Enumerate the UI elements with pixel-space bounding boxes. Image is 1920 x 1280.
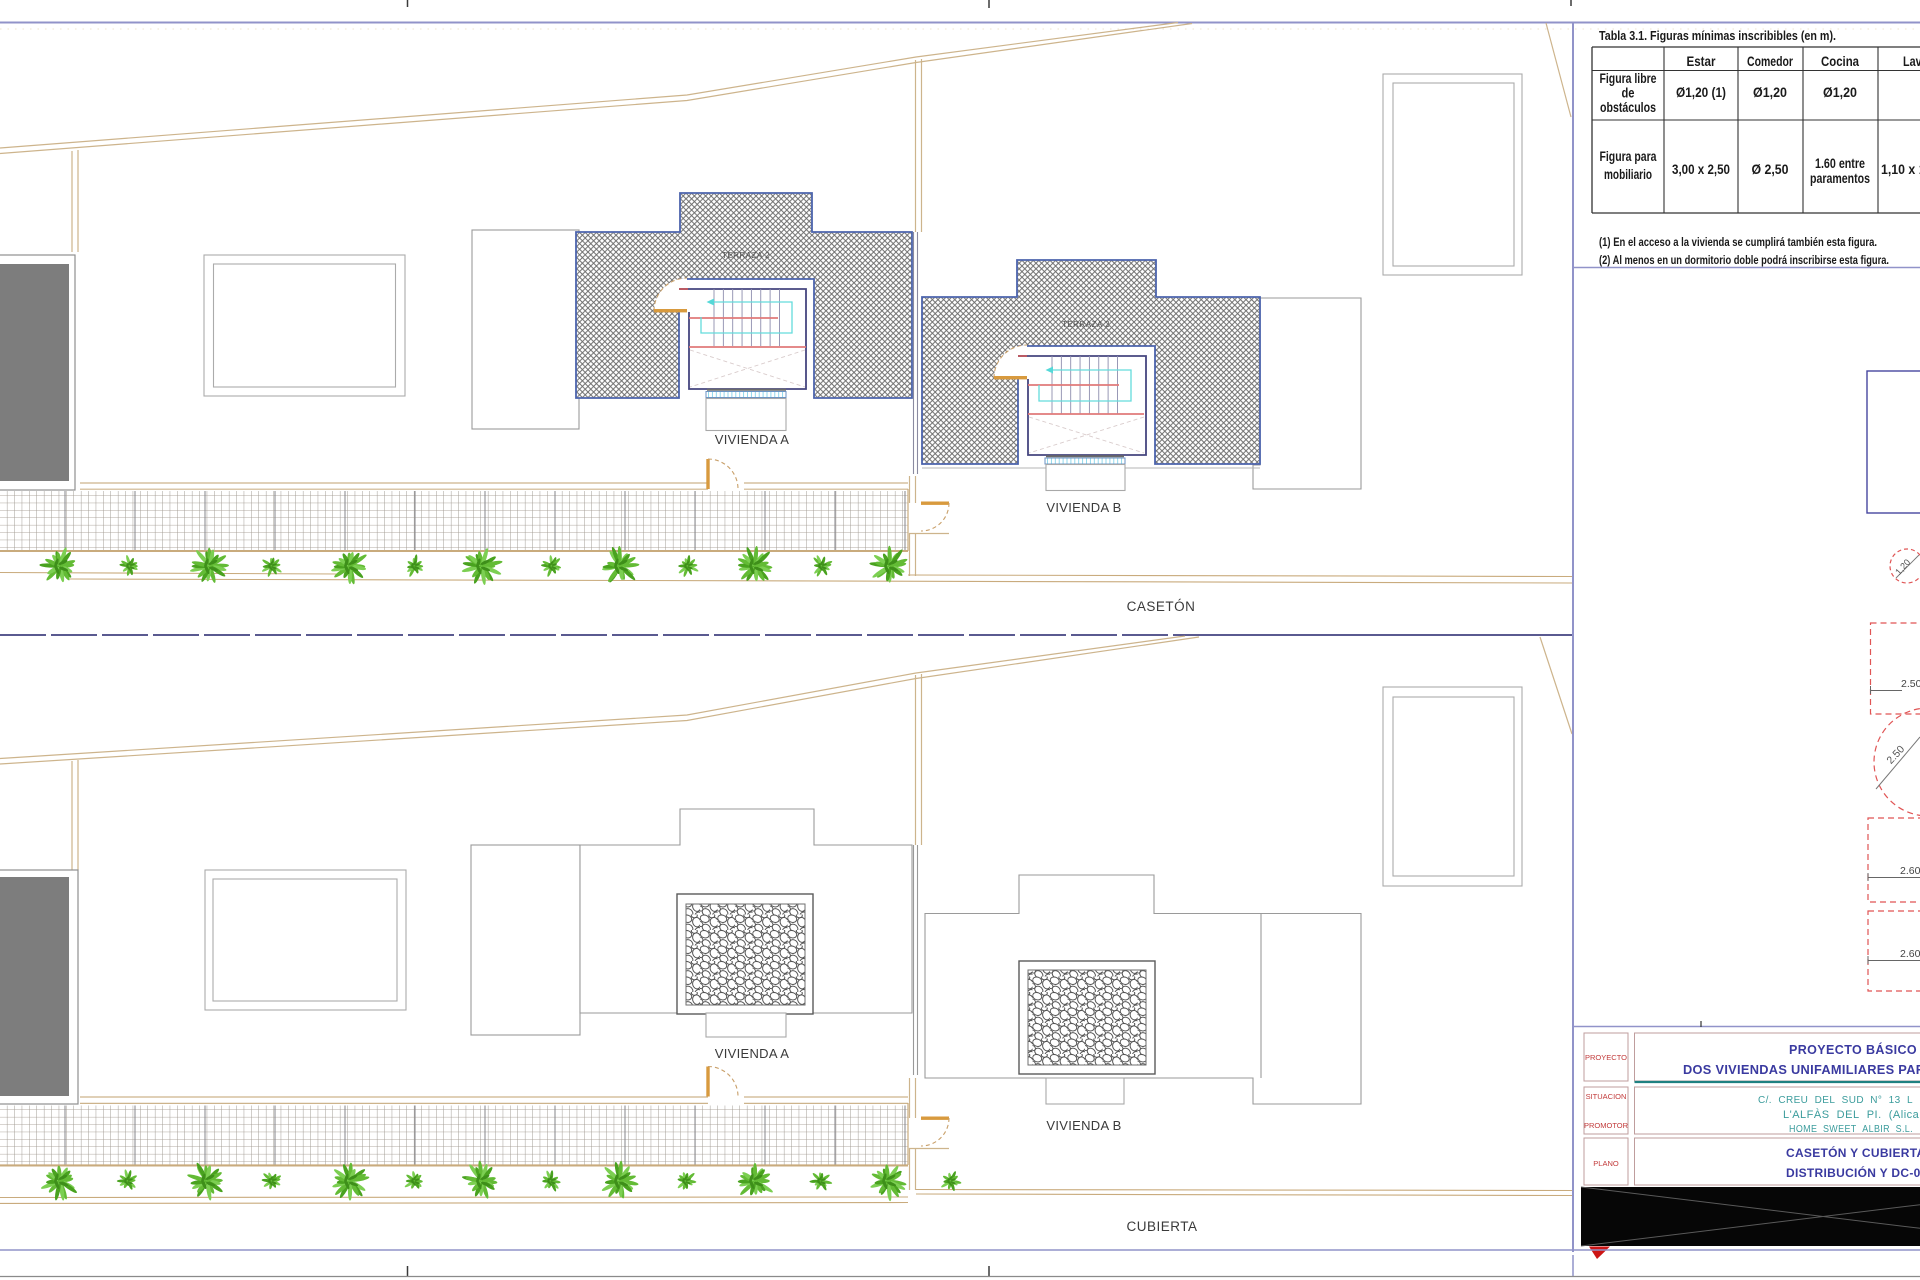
svg-text:SITUACION: SITUACION xyxy=(1586,1092,1627,1101)
svg-text:2.50: 2.50 xyxy=(1901,678,1920,690)
svg-text:Ø1,20: Ø1,20 xyxy=(1753,84,1787,100)
svg-text:TERRAZA 2: TERRAZA 2 xyxy=(1062,320,1110,329)
svg-text:1,20: 1,20 xyxy=(1893,557,1912,577)
svg-text:VIVIENDA A: VIVIENDA A xyxy=(715,432,790,447)
svg-text:Tabla 3.1. Figuras mínimas ins: Tabla 3.1. Figuras mínimas inscribibles … xyxy=(1599,29,1836,43)
svg-text:VIVIENDA B: VIVIENDA B xyxy=(1046,500,1121,515)
svg-text:2.60: 2.60 xyxy=(1900,865,1920,877)
svg-text:2.60: 2.60 xyxy=(1900,948,1920,960)
svg-text:CASETÓN: CASETÓN xyxy=(1127,599,1196,614)
svg-text:mobiliario: mobiliario xyxy=(1604,167,1652,182)
svg-text:PROMOTOR: PROMOTOR xyxy=(1584,1121,1629,1130)
svg-text:3,00 x 2,50: 3,00 x 2,50 xyxy=(1672,161,1730,177)
svg-text:Lavadero: Lavadero xyxy=(1903,53,1920,69)
svg-text:1,10 x 1,: 1,10 x 1, xyxy=(1881,161,1920,177)
svg-text:Comedor: Comedor xyxy=(1747,53,1793,69)
svg-text:(2) Al menos en un dormitorio: (2) Al menos en un dormitorio doble podr… xyxy=(1599,255,1889,267)
svg-text:CASETÓN Y CUBIERTA: CASETÓN Y CUBIERTA xyxy=(1786,1145,1920,1160)
svg-text:Ø1,20: Ø1,20 xyxy=(1823,84,1857,100)
svg-text:paramentos: paramentos xyxy=(1810,170,1870,186)
svg-text:VIVIENDA B: VIVIENDA B xyxy=(1046,1118,1121,1133)
svg-text:Ø 2,50: Ø 2,50 xyxy=(1752,161,1789,177)
svg-text:2.50: 2.50 xyxy=(1884,743,1907,766)
svg-text:Figura para: Figura para xyxy=(1600,149,1657,164)
svg-text:1.60 entre: 1.60 entre xyxy=(1815,155,1865,171)
svg-text:(1) En el acceso a la vivienda: (1) En el acceso a la vivienda se cumpli… xyxy=(1599,237,1877,249)
svg-text:DISTRIBUCIÓN Y DC-0: DISTRIBUCIÓN Y DC-0 xyxy=(1786,1165,1920,1180)
svg-text:L'ALFÀS DEL PI. (Alicante: L'ALFÀS DEL PI. (Alicante xyxy=(1783,1108,1920,1121)
svg-text:VIVIENDA A: VIVIENDA A xyxy=(715,1046,790,1061)
svg-text:de: de xyxy=(1622,86,1635,101)
svg-text:Ø1,20 (1): Ø1,20 (1) xyxy=(1676,84,1726,100)
svg-text:DOS VIVIENDAS UNIFAMILIARES PA: DOS VIVIENDAS UNIFAMILIARES PAREA xyxy=(1683,1062,1920,1077)
svg-text:obstáculos: obstáculos xyxy=(1600,100,1656,115)
svg-text:HOME SWEET ALBIR S.L.: HOME SWEET ALBIR S.L. xyxy=(1789,1124,1913,1135)
svg-text:PLANO: PLANO xyxy=(1593,1159,1619,1168)
svg-text:PROYECTO: PROYECTO xyxy=(1585,1053,1627,1062)
svg-text:Figura libre: Figura libre xyxy=(1600,71,1657,86)
svg-text:Estar: Estar xyxy=(1687,53,1716,69)
svg-text:PROYECTO BÁSICO DE: PROYECTO BÁSICO DE xyxy=(1789,1042,1920,1057)
svg-text:Cocina: Cocina xyxy=(1821,53,1859,69)
svg-text:C/. CREU DEL SUD N° 13 L: C/. CREU DEL SUD N° 13 L xyxy=(1758,1095,1913,1106)
svg-text:TERRAZA 2: TERRAZA 2 xyxy=(722,251,770,260)
svg-text:CUBIERTA: CUBIERTA xyxy=(1126,1219,1197,1234)
